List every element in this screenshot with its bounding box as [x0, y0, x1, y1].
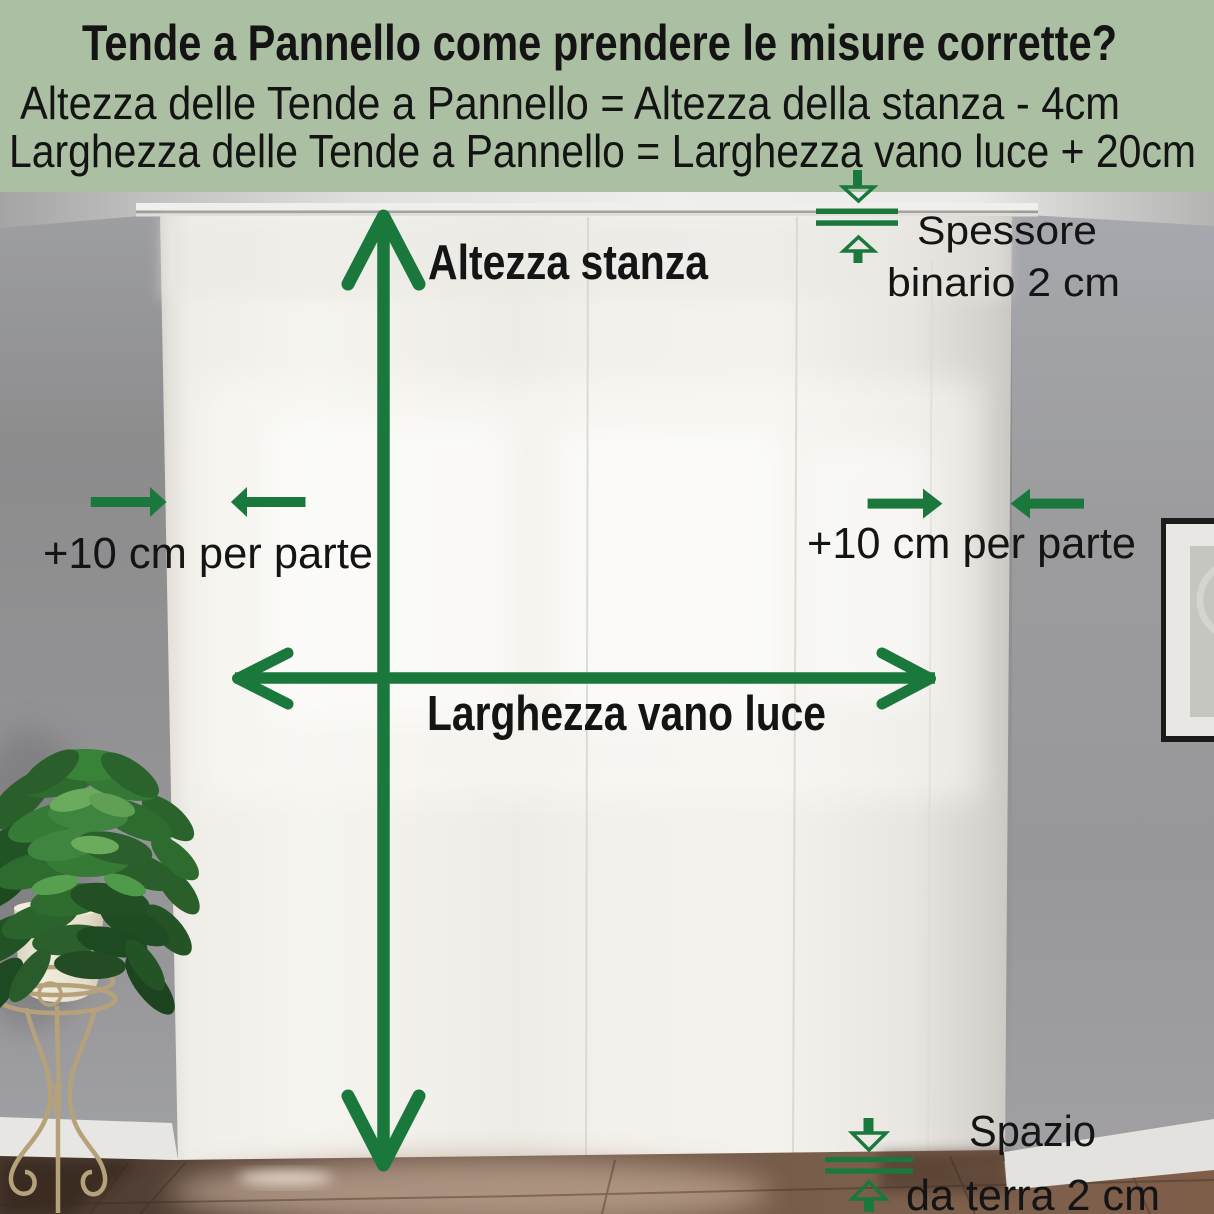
svg-text:Larghezza vano luce: Larghezza vano luce: [427, 687, 826, 741]
svg-text:Spessore: Spessore: [917, 209, 1097, 253]
svg-text:+10 cm per parte: +10 cm per parte: [43, 529, 373, 578]
svg-text:da terra 2 cm: da terra 2 cm: [906, 1171, 1160, 1214]
svg-text:binario 2 cm: binario 2 cm: [887, 261, 1120, 305]
svg-text:Tende a Pannello come prendere: Tende a Pannello come prendere le misure…: [82, 15, 1117, 71]
svg-text:Spazio: Spazio: [969, 1107, 1096, 1156]
svg-text:Larghezza delle Tende a Pannel: Larghezza delle Tende a Pannello = Largh…: [9, 125, 1196, 177]
svg-text:Altezza stanza: Altezza stanza: [428, 236, 709, 290]
svg-text:Altezza delle Tende a Pannello: Altezza delle Tende a Pannello = Altezza…: [20, 77, 1120, 129]
svg-text:+10 cm per parte: +10 cm per parte: [807, 519, 1136, 568]
